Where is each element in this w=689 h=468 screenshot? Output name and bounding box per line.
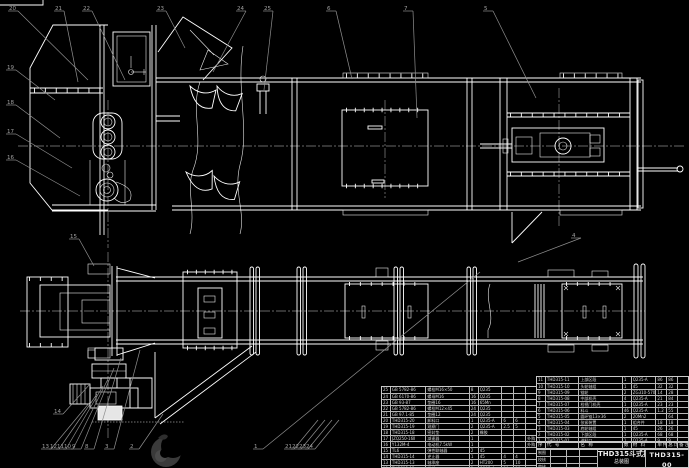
table-cell: Q235-A <box>479 418 503 423</box>
table-cell: 6 <box>502 418 514 423</box>
callout-number: 24 <box>306 444 313 450</box>
table-cell: 22 <box>382 406 391 411</box>
table-cell: 下部区段 <box>579 432 622 437</box>
callout-number: 15 <box>70 234 77 240</box>
leader-line <box>16 134 72 168</box>
table-cell: Q235-A <box>632 402 657 407</box>
table-cell: 2 <box>470 424 479 429</box>
table-cell: 底轮轴组 <box>579 426 622 431</box>
callout-number: 6 <box>327 6 331 12</box>
table-row: 11THD315-11上部区段1Q235-A8686 <box>537 377 688 383</box>
table-cell <box>678 426 688 431</box>
table-cell: 86 <box>667 377 678 383</box>
table-cell: GB 97.1-85 <box>391 412 427 417</box>
bom-table-right: 11THD315-11上部区段1Q235-A868610THD315-10头轮轴… <box>536 376 689 442</box>
table-cell: 卸料口 <box>426 418 469 423</box>
leader-line <box>94 358 121 449</box>
top-view-side-elevation <box>18 17 686 248</box>
callout-number: 22 <box>83 6 90 12</box>
table-cell: 26 <box>656 426 667 431</box>
head-top-access-box <box>113 32 150 86</box>
callout-number: 4 <box>572 233 576 239</box>
table-cell <box>526 424 536 429</box>
takeup-section <box>480 78 683 210</box>
title-block-signature-grid: 制图校核审核 <box>537 450 598 467</box>
table-cell: HT200 <box>479 460 503 465</box>
feed-chute <box>158 17 232 80</box>
callout-number: 1 <box>254 444 258 450</box>
table-cell: 25 <box>382 387 391 393</box>
leader-line <box>16 160 80 196</box>
table-cell: 1 <box>623 384 632 389</box>
table-cell: 1 <box>623 402 632 407</box>
table-cell: 中部机壳 <box>579 396 622 401</box>
table-cell <box>502 442 514 447</box>
callout-number: 23 <box>157 6 164 12</box>
table-cell: 28 <box>667 390 678 395</box>
table-cell: 5 <box>514 424 526 429</box>
table-cell: 32 <box>656 384 667 389</box>
table-cell: THD315-20 <box>391 418 427 423</box>
table-cell <box>567 457 581 462</box>
table-cell <box>580 464 597 468</box>
table-cell <box>514 436 526 441</box>
table-cell: 3 <box>537 426 546 431</box>
table-cell: 外购 <box>526 442 536 447</box>
leader-line <box>92 11 125 80</box>
leader-line <box>336 11 352 79</box>
title-block: 制图校核审核 THD315斗式提升机 总装图 THD315-00 机械设计制造及… <box>536 449 689 468</box>
leader-line <box>18 11 88 80</box>
table-cell: THD315-13 <box>391 460 427 465</box>
table-cell: 68 <box>656 432 667 437</box>
table-cell: 圆环链13×36 <box>579 414 622 419</box>
signature-grid: 制图校核审核 <box>537 450 597 467</box>
callout-number: 2 <box>130 444 134 450</box>
table-cell: 9 <box>537 390 546 395</box>
table-cell: 46 <box>623 408 632 413</box>
table-cell: 2 <box>537 432 546 437</box>
drawing-title-cell: THD315斗式提升机 总装图 <box>598 450 646 467</box>
table-cell <box>526 430 536 435</box>
table-row: 22GB 5782-86螺栓M12×4524Q235 <box>382 405 536 411</box>
table-cell <box>514 448 526 453</box>
table-cell: 15 <box>382 448 391 453</box>
table-cell: GB 6170-86 <box>391 394 427 399</box>
table-cell: Q235 <box>479 394 503 399</box>
callout-number: 16 <box>7 155 14 161</box>
table-cell: THD315-18 <box>391 430 427 435</box>
table-cell: 5 <box>537 414 546 419</box>
table-cell: 螺栓M16×50 <box>426 387 469 393</box>
table-cell: 86 <box>656 377 667 383</box>
table-cell <box>567 450 581 456</box>
product-title: THD315斗式提升机 <box>598 450 645 459</box>
table-cell <box>678 377 688 383</box>
head-sprocket-assembly <box>90 113 131 205</box>
table-cell: 1 <box>470 454 479 459</box>
table-cell <box>678 414 688 419</box>
table-cell: Q235-A <box>632 377 657 383</box>
table-cell: 1 <box>470 436 479 441</box>
plan-middle-door <box>345 268 428 350</box>
table-row: 审核 <box>537 463 597 468</box>
table-cell <box>678 396 688 401</box>
table-row: 6THD315-06料斗46Q235-A1.255 <box>537 407 688 413</box>
table-cell: 84 <box>667 396 678 401</box>
table-cell: 18 <box>667 420 678 425</box>
table-cell: 23 <box>667 402 678 407</box>
callout-number: 9 <box>72 444 76 450</box>
motor-body <box>98 406 122 420</box>
table-cell <box>526 460 536 465</box>
table-cell: 1 <box>623 426 632 431</box>
table-cell: 逆止器 <box>426 454 469 459</box>
table-row: 19THD315-19观察门2Q235-A2.55 <box>382 423 536 429</box>
table-cell: 检视门机壳 <box>579 402 622 407</box>
table-cell: 16 <box>470 394 479 399</box>
table-cell: 64 <box>667 414 678 419</box>
table-row: 24GB 6170-86螺母M1616Q235 <box>382 393 536 399</box>
table-cell: 1 <box>623 420 632 425</box>
callout-number: 18 <box>7 100 14 106</box>
sheet-frame-corner <box>0 0 43 5</box>
table-cell: 螺栓M12×45 <box>426 406 469 411</box>
table-cell: THD315-02 <box>546 432 580 437</box>
table-cell: 20 <box>382 418 391 423</box>
table-cell: 2 <box>623 390 632 395</box>
table-cell <box>479 436 503 441</box>
table-cell <box>502 430 514 435</box>
table-cell: THD315-08 <box>546 396 580 401</box>
table-cell <box>551 464 567 468</box>
table-cell <box>526 400 536 405</box>
table-cell: 18 <box>382 430 391 435</box>
table-cell: 2 <box>470 460 479 465</box>
table-cell <box>526 448 536 453</box>
table-cell: 24 <box>382 394 391 399</box>
leader-line <box>114 350 140 449</box>
table-cell <box>502 394 514 399</box>
table-cell: 组合件 <box>632 420 657 425</box>
table-cell: THD315-10 <box>546 384 580 389</box>
table-cell <box>678 402 688 407</box>
table-cell: 16 <box>470 400 479 405</box>
table-cell: 链轮 <box>579 390 622 395</box>
table-row: 8THD315-08中部机壳4Q235-A2184 <box>537 395 688 401</box>
table-cell: 7 <box>537 402 546 407</box>
table-cell: 6 <box>537 408 546 413</box>
discharge-spout <box>512 212 542 243</box>
table-cell: 26 <box>667 426 678 431</box>
table-row: 23GB 93-87垫圈161665Mn <box>382 399 536 405</box>
table-cell: THD315-06 <box>546 408 580 413</box>
callout-number: 14 <box>54 409 61 415</box>
table-cell: 4 <box>514 454 526 459</box>
cad-drawing-sheet: 2021222324256751918171615414131211109832… <box>0 0 689 468</box>
table-cell: 外购 <box>526 436 536 441</box>
table-cell <box>514 394 526 399</box>
table-cell: 弹性联轴器 <box>426 448 469 453</box>
table-cell: Q235-A <box>632 408 657 413</box>
leader-line <box>64 11 78 82</box>
table-cell <box>514 406 526 411</box>
table-row: 14THD315-14逆止器14544 <box>382 453 536 459</box>
table-cell: 1.2 <box>656 408 667 413</box>
callout-number: 10 <box>64 444 71 450</box>
table-row: 25GB 5782-86螺栓M16×508Q235 <box>382 387 536 393</box>
table-cell <box>502 387 514 393</box>
table-cell: 张紧装置 <box>579 420 622 425</box>
table-cell <box>551 457 567 462</box>
table-cell: 2.5 <box>502 424 514 429</box>
table-cell: Q235 <box>479 406 503 411</box>
callout-number: 7 <box>404 6 408 12</box>
callout-number: 13 <box>42 444 49 450</box>
table-cell: 1 <box>623 432 632 437</box>
table-cell <box>526 387 536 393</box>
table-cell: 21 <box>382 412 391 417</box>
table-cell <box>526 412 536 417</box>
table-row: 4THD315-04张紧装置1组合件1818 <box>537 419 688 425</box>
table-row: 2THD315-02下部区段1Q235-A6868 <box>537 431 688 437</box>
leader-line <box>315 420 339 449</box>
table-cell: 校核 <box>537 457 551 462</box>
table-cell: THD315-14 <box>391 454 427 459</box>
table-row: 20THD315-20卸料口1Q235-A66 <box>382 417 536 423</box>
callout-number: 20 <box>9 6 16 12</box>
table-cell: GB 93-87 <box>391 400 427 405</box>
table-cell: THD315-04 <box>546 420 580 425</box>
table-cell: 审核 <box>537 464 551 468</box>
table-row: 7THD315-07检视门机壳1Q235-A2323 <box>537 401 688 407</box>
callout-number: 8 <box>85 444 89 450</box>
table-cell: 上部区段 <box>579 377 622 383</box>
leader-line <box>16 105 60 138</box>
table-row: 18THD315-18密封垫2橡胶 <box>382 429 536 435</box>
table-cell: 4 <box>623 396 632 401</box>
table-cell: 10 <box>514 460 526 465</box>
table-cell: THD315-11 <box>546 377 580 383</box>
table-cell: JZQ250-16Ⅱ <box>391 436 427 441</box>
table-cell: 45 <box>479 448 503 453</box>
table-cell: 2 <box>470 448 479 453</box>
leader-line <box>518 238 581 262</box>
callout-number: 25 <box>264 6 271 12</box>
table-cell: 45 <box>632 384 657 389</box>
table-cell: 4 <box>537 420 546 425</box>
leader-line <box>79 239 94 266</box>
callout-number: 21 <box>285 444 292 450</box>
table-cell: 1 <box>470 442 479 447</box>
crescent-watermark-logo <box>151 434 185 467</box>
callout-number: 19 <box>7 65 14 71</box>
table-cell: 1 <box>623 377 632 383</box>
table-cell <box>526 406 536 411</box>
table-cell <box>567 464 581 468</box>
table-cell <box>502 406 514 411</box>
table-cell: 料斗 <box>579 408 622 413</box>
table-row: 17JZQ250-16Ⅱ减速器1外购 <box>382 435 536 441</box>
table-cell: 16 <box>382 442 391 447</box>
table-cell: 14 <box>656 390 667 395</box>
table-cell: THD315-05 <box>546 414 580 419</box>
table-cell <box>502 448 514 453</box>
table-cell: 13 <box>382 460 391 465</box>
table-cell: 23 <box>656 402 667 407</box>
plan-casing-band <box>116 277 643 344</box>
table-cell: GB 5782-86 <box>391 406 427 411</box>
table-cell <box>479 442 503 447</box>
table-cell: 24 <box>470 412 479 417</box>
table-cell <box>678 390 688 395</box>
table-row: 13THD315-13轴承座2HT200510 <box>382 459 536 465</box>
table-cell: 垫圈12 <box>426 412 469 417</box>
table-row: 制图 <box>537 450 597 456</box>
callout-number: 5 <box>484 6 488 12</box>
bom-header-row: 序代 号名 称数材 料单件总计备注 <box>536 442 689 449</box>
callout-number: 17 <box>7 129 14 135</box>
table-cell: 2 <box>623 414 632 419</box>
table-cell: 4 <box>502 454 514 459</box>
table-cell: 6 <box>514 418 526 423</box>
table-cell: 2 <box>470 430 479 435</box>
table-cell: GB 5782-86 <box>391 387 427 393</box>
table-cell: 65Mn <box>479 400 503 405</box>
table-cell: 8 <box>470 387 479 393</box>
table-cell: 21 <box>656 396 667 401</box>
table-row: 15TL6弹性联轴器245 <box>382 447 536 453</box>
table-cell <box>551 450 567 456</box>
table-row: 21GB 97.1-85垫圈1224Q235 <box>382 411 536 417</box>
table-cell: 18 <box>656 420 667 425</box>
head-section <box>30 25 180 235</box>
leader-line <box>166 11 185 48</box>
table-cell: 垫圈16 <box>426 400 469 405</box>
table-row: 9THD315-09链轮2ZG310-5701428 <box>537 389 688 395</box>
table-cell <box>526 394 536 399</box>
table-cell <box>502 412 514 417</box>
table-cell: 减速器 <box>426 436 469 441</box>
table-cell: 45 <box>632 426 657 431</box>
bom-table-left: 25GB 5782-86螺栓M16×508Q23524GB 6170-86螺母M… <box>381 386 537 468</box>
plan-inlet-frame <box>183 272 237 348</box>
table-cell: 观察门 <box>426 424 469 429</box>
drawing-number: THD315-00 <box>646 450 688 467</box>
table-cell: ZG310-570 <box>632 390 657 395</box>
table-cell: Q235-A <box>632 432 657 437</box>
table-cell: 8 <box>537 396 546 401</box>
table-cell: 24 <box>470 406 479 411</box>
table-cell: 5 <box>502 460 514 465</box>
table-row: 10THD315-10头轮轴组1453232 <box>537 383 688 389</box>
table-cell: 头轮轴组 <box>579 384 622 389</box>
leader-line <box>16 70 55 100</box>
table-cell: 螺母M16 <box>426 394 469 399</box>
table-cell: 密封垫 <box>426 430 469 435</box>
table-cell: Q235-A <box>632 396 657 401</box>
callout-number: 24 <box>237 6 244 12</box>
leader-line <box>413 11 417 118</box>
table-cell <box>502 400 514 405</box>
table-cell: 14 <box>382 454 391 459</box>
table-row: 16Y132M-4电动机7.5kW1外购 <box>382 441 536 447</box>
table-cell: 10 <box>537 384 546 389</box>
drawing-number-cell: THD315-00 机械设计制造及其自动化 <box>646 450 688 467</box>
table-cell: 32 <box>667 384 678 389</box>
table-cell <box>526 454 536 459</box>
leader-line <box>493 11 536 98</box>
table-cell <box>580 450 597 456</box>
table-cell <box>514 400 526 405</box>
table-cell <box>502 436 514 441</box>
table-cell: 55 <box>667 408 678 413</box>
table-cell: TL6 <box>391 448 427 453</box>
drawing-type: 总装图 <box>598 459 645 466</box>
table-cell: Q235 <box>479 387 503 393</box>
callout-layer: 2021222324256751918171615414131211109832… <box>6 6 581 450</box>
table-cell <box>514 442 526 447</box>
table-cell: Q235 <box>479 412 503 417</box>
table-cell: 68 <box>667 432 678 437</box>
table-cell <box>656 414 667 419</box>
table-cell <box>580 457 597 462</box>
table-cell <box>514 387 526 393</box>
table-cell: 45 <box>479 454 503 459</box>
screw-end <box>677 166 683 172</box>
table-row: 5THD315-05圆环链13×36220Mn264 <box>537 413 688 419</box>
callout-number: 3 <box>105 444 109 450</box>
table-cell: 17 <box>382 436 391 441</box>
table-cell: 橡胶 <box>479 430 503 435</box>
table-cell <box>678 384 688 389</box>
table-cell <box>678 408 688 413</box>
table-cell: Y132M-4 <box>391 442 427 447</box>
table-cell: THD315-09 <box>546 390 580 395</box>
table-cell: 轴承座 <box>426 460 469 465</box>
table-cell <box>514 412 526 417</box>
table-cell: 制图 <box>537 450 551 456</box>
callout-number: 22 <box>292 444 299 450</box>
table-cell <box>678 432 688 437</box>
callout-number: 21 <box>55 6 62 12</box>
table-row: 校核 <box>537 456 597 462</box>
table-cell: 23 <box>382 400 391 405</box>
table-cell: THD315-07 <box>546 402 580 407</box>
table-cell <box>514 430 526 435</box>
table-cell: 电动机7.5kW <box>426 442 469 447</box>
table-cell: Q235-A <box>479 424 503 429</box>
callout-number: 11 <box>57 444 64 450</box>
table-cell <box>526 418 536 423</box>
callout-number: 12 <box>50 444 57 450</box>
table-cell: 19 <box>382 424 391 429</box>
table-cell: 1 <box>470 418 479 423</box>
table-cell: THD315-03 <box>546 426 580 431</box>
table-cell: 11 <box>537 377 546 383</box>
table-cell: 20Mn2 <box>632 414 657 419</box>
table-cell <box>678 420 688 425</box>
leader-line <box>59 394 97 449</box>
table-row: 3THD315-03底轮轴组1452626 <box>537 425 688 431</box>
table-cell: THD315-19 <box>391 424 427 429</box>
